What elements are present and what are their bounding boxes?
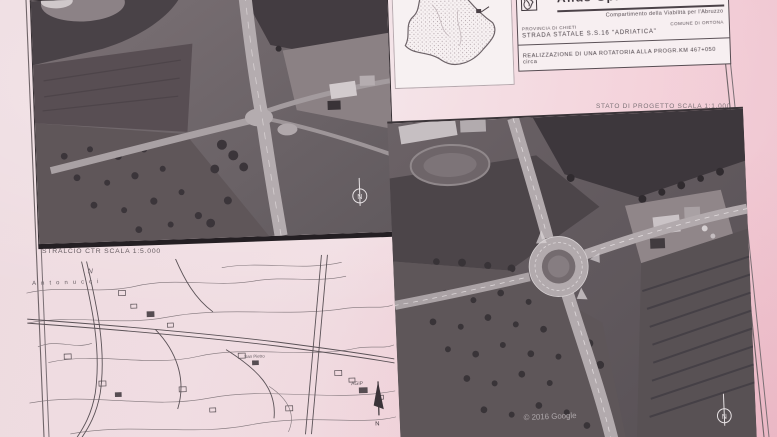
north-letter: N xyxy=(357,194,362,201)
ctr-label-san-pietro: San Pietro xyxy=(244,353,265,359)
province-label: PROVINCIA DI CHIETI xyxy=(522,25,577,32)
ctr-label-antonucci: Antonucci xyxy=(32,279,103,287)
ctr-north-letter: N xyxy=(88,268,94,275)
north-letter: N xyxy=(722,414,727,421)
ctr-map: N Antonucci San Pietro AGIP N xyxy=(26,253,397,437)
aerial-photo-existing-state: N xyxy=(30,0,396,249)
region-locator-map xyxy=(391,0,515,89)
company-name: Anas SpA xyxy=(557,0,626,5)
site-location-marker xyxy=(476,9,481,13)
caption-ctr-excerpt: STRALCIO CTR SCALA 1:5.000 xyxy=(42,248,161,255)
anas-logo-icon xyxy=(521,0,552,12)
north-letter: N xyxy=(375,421,380,427)
project-title: REALIZZAZIONE DI UNA ROTATORIA ALLA PROG… xyxy=(523,46,730,65)
aerial-photo-project-state: © 2016 Google N xyxy=(387,107,757,437)
north-arrow-icon: N xyxy=(373,381,384,427)
contour-lines xyxy=(26,261,397,437)
municipality-label: COMUNE DI ORTONA xyxy=(670,19,724,26)
photographed-plan-sheet: N Anas SpA Compartimento della V xyxy=(0,0,777,437)
title-block: Anas SpA Compartimento della Viabilità p… xyxy=(516,0,732,72)
caption-project-state: STATO DI PROGETTO SCALA 1:1.000 xyxy=(596,103,731,110)
ctr-label-agip: AGIP xyxy=(351,381,364,387)
